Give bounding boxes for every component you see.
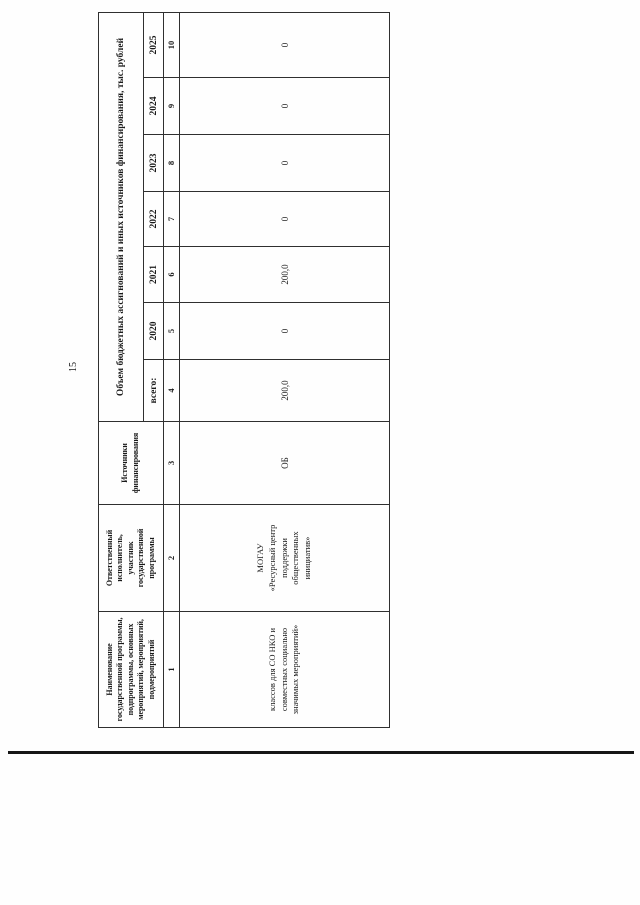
header-year-2020: 2020 (144, 303, 164, 360)
header-col-sources: Источники финансирования (99, 422, 164, 505)
header-colnum-6: 6 (164, 247, 180, 303)
header-colnum-8: 8 (164, 135, 180, 192)
table-row: классов для СО НКО и совместных социальн… (180, 12, 390, 727)
header-col-name: Наименование государственной программы, … (99, 612, 164, 728)
header-colnum-5: 5 (164, 303, 180, 360)
cell-program-name: классов для СО НКО и совместных социальн… (180, 612, 390, 728)
header-colnum-2: 2 (164, 505, 180, 612)
header-row-colnums: 1 2 3 4 5 6 7 8 9 10 (164, 12, 180, 727)
document-page: Наименование государственной программы, … (0, 0, 640, 905)
header-colnum-4: 4 (164, 360, 180, 422)
header-subcol-total: всего: (144, 360, 164, 422)
header-year-2023: 2023 (144, 135, 164, 192)
page-number: 15 (66, 348, 82, 386)
cell-executor: МОГАУ «Ресурсный центр поддержки обществ… (180, 505, 390, 612)
cell-2020: 0 (180, 303, 390, 360)
cell-total: 200,0 (180, 360, 390, 422)
header-colnum-3: 3 (164, 422, 180, 505)
financing-table: Наименование государственной программы, … (98, 12, 390, 728)
header-colnum-10: 10 (164, 12, 180, 77)
header-col-executor: Ответственный исполнитель, участник госу… (99, 505, 164, 612)
cell-2021: 200,0 (180, 247, 390, 303)
cell-2025: 0 (180, 12, 390, 77)
header-colnum-1: 1 (164, 612, 180, 728)
cell-2023: 0 (180, 135, 390, 192)
header-row-main: Наименование государственной программы, … (99, 12, 144, 727)
cell-funding-source: ОБ (180, 422, 390, 505)
cell-2024: 0 (180, 78, 390, 135)
rotated-table-container: Наименование государственной программы, … (98, 13, 390, 728)
header-colnum-9: 9 (164, 78, 180, 135)
header-year-2025: 2025 (144, 12, 164, 77)
header-year-2022: 2022 (144, 192, 164, 247)
header-colnum-7: 7 (164, 192, 180, 247)
header-year-2021: 2021 (144, 247, 164, 303)
bottom-rule (8, 751, 634, 754)
header-year-2024: 2024 (144, 78, 164, 135)
cell-2022: 0 (180, 192, 390, 247)
header-span-financing: Объем бюджетных ассигнований и иных исто… (99, 12, 144, 421)
